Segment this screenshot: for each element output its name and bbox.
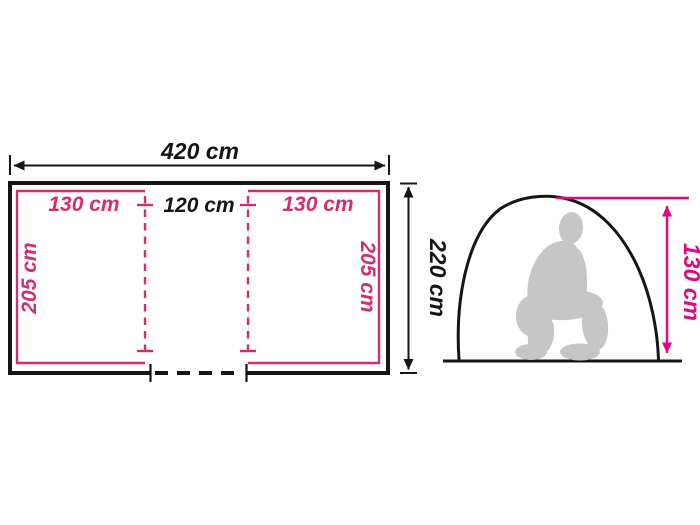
peak-height-label: 130 cm bbox=[679, 243, 700, 321]
right-cabin-width-label: 130 cm bbox=[282, 193, 353, 216]
left-cabin-width-label: 130 cm bbox=[48, 193, 119, 216]
total-width-label: 420 cm bbox=[160, 138, 239, 164]
silhouette-front-foot bbox=[560, 344, 600, 361]
tent-side-view: 130 cm bbox=[443, 196, 700, 361]
person-silhouette bbox=[515, 211, 611, 361]
tent-dimensions-diagram: 420 cm 130 cm 205 cm bbox=[0, 0, 700, 525]
silhouette-back-foot bbox=[515, 344, 547, 360]
silhouette-head bbox=[557, 211, 584, 245]
right-cabin-depth-label: 205 cm bbox=[356, 240, 379, 312]
floor-plan: 420 cm 130 cm 205 cm bbox=[8, 138, 451, 382]
right-cabin: 130 cm 205 cm bbox=[240, 191, 379, 363]
total-depth-label: 220 cm bbox=[425, 238, 451, 317]
left-cabin-depth-label: 205 cm bbox=[18, 242, 41, 314]
diagram-svg: 420 cm 130 cm 205 cm bbox=[0, 0, 700, 525]
total-width-dimension: 420 cm bbox=[10, 138, 389, 175]
center-section-width-label: 120 cm bbox=[163, 194, 234, 217]
left-cabin: 130 cm 205 cm bbox=[17, 191, 153, 363]
total-depth-dimension: 220 cm bbox=[400, 184, 451, 374]
